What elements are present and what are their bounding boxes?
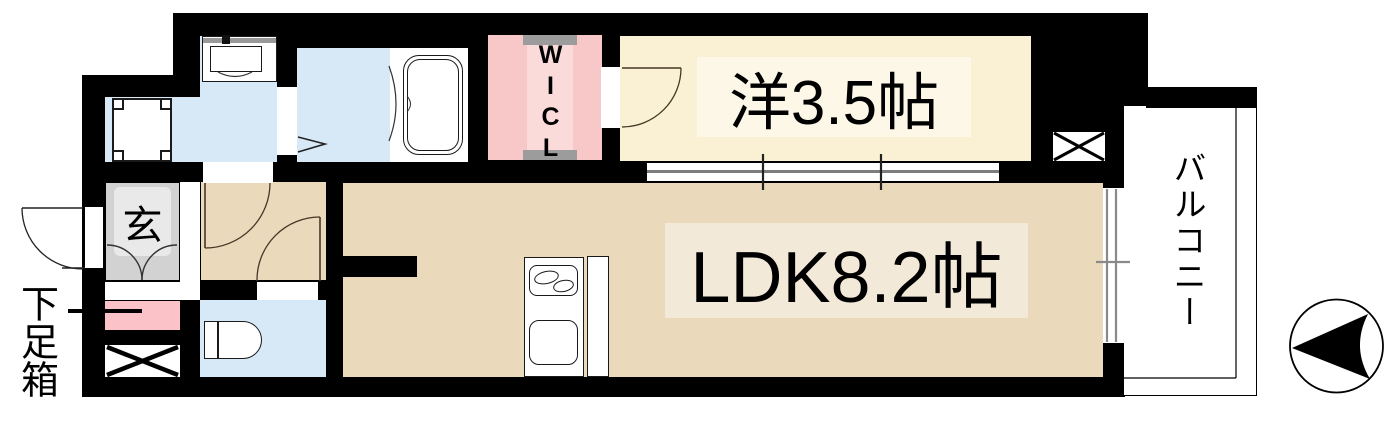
room-hallway [200,182,326,280]
bathtub-inner [407,59,459,151]
floor-plan: 洋3.5帖 LDK8.2帖 WICL 玄 下足箱 バルコニー [0,0,1393,428]
toilet-icon [204,321,218,359]
ldk-label-box: LDK8.2帖 [665,223,1028,318]
wall-kitchen-stub [326,256,417,277]
sliding-door-rail [647,170,999,173]
pipe-space-x-icon [105,345,180,377]
balcony-window-opening [1103,188,1124,343]
vanity-faucet [222,35,230,44]
bathroom-door-opening [277,87,297,155]
vanity-counter-edge [203,38,276,43]
washer-pan-corner [112,150,124,162]
balcony-label: バルコニー [1168,136,1206,346]
entrance-door-swing [22,208,85,269]
washer-pan-corner [160,98,172,110]
entrance-label: 玄 [114,187,171,256]
kitchen-sink-icon [529,320,578,365]
shoe-box-pointer-line [68,309,142,313]
washer-pan-corner [112,98,124,110]
washer-pan-corner [160,150,172,162]
western-room-label: 洋3.5帖 [729,52,939,142]
shoe-box-label: 下足箱 [10,278,62,404]
wall-balcony-top [1146,87,1257,108]
shoe-box [105,301,180,330]
ldk-label: LDK8.2帖 [690,218,1002,323]
toilet-bowl [218,321,262,359]
pipe-space-x-icon [1053,132,1105,161]
washroom-door-opening [203,162,273,183]
western-door-opening [601,67,620,128]
kitchen-counter-side [587,256,609,377]
wicl-label: WICL [534,44,566,162]
hall-strip-lower [105,282,200,300]
toilet-door-opening [257,282,318,300]
western-room-label-box: 洋3.5帖 [697,57,971,137]
north-arrow-icon [1290,300,1383,393]
vanity-bowl [210,46,262,72]
room-bathroom [297,48,390,162]
entrance-door-opening [85,207,103,268]
